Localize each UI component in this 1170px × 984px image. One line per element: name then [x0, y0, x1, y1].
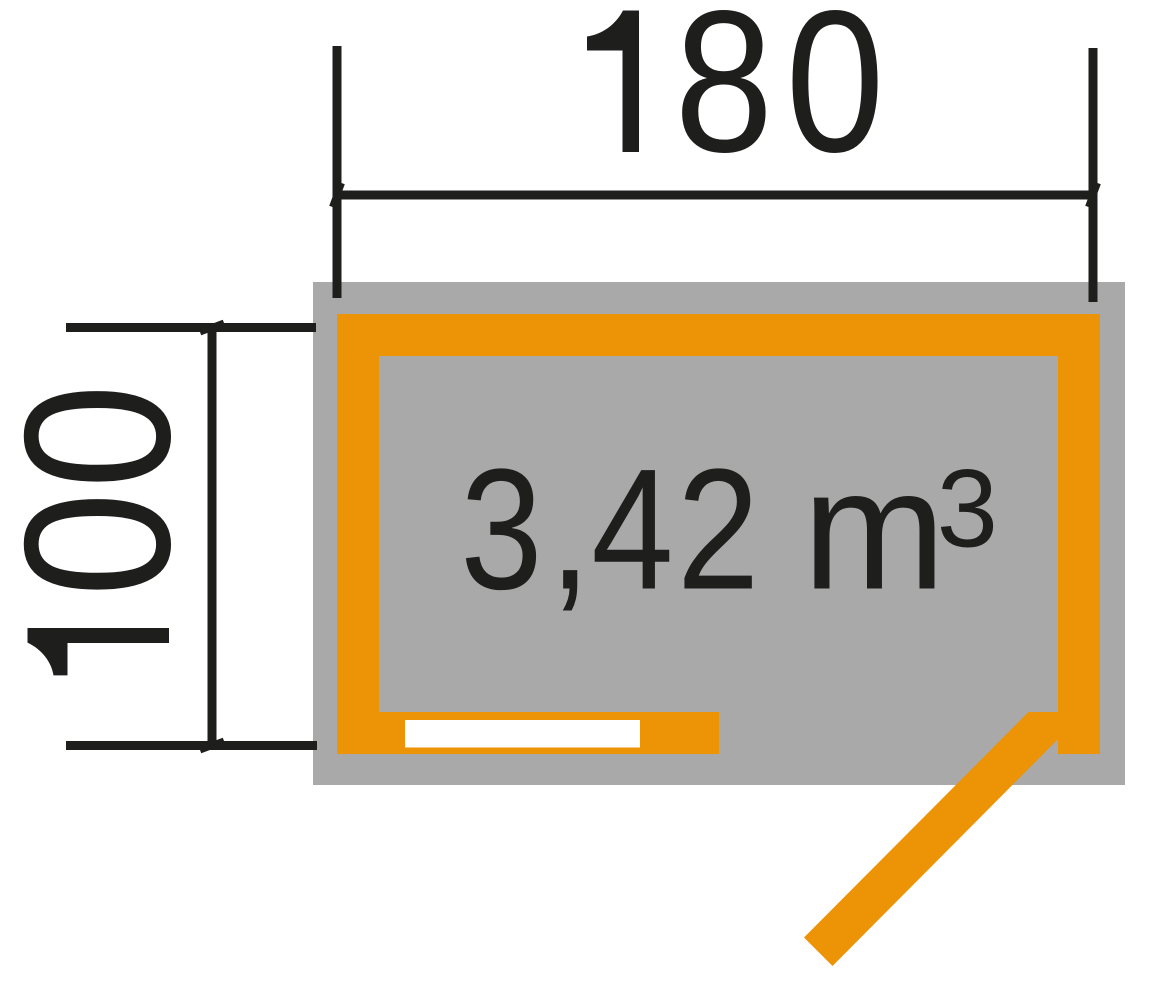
svg-text:00: 00: [0, 381, 214, 597]
svg-text:m: m: [803, 434, 946, 626]
svg-text:3: 3: [937, 448, 998, 571]
svg-text:42: 42: [591, 433, 762, 625]
svg-text:3,: 3,: [460, 433, 597, 625]
